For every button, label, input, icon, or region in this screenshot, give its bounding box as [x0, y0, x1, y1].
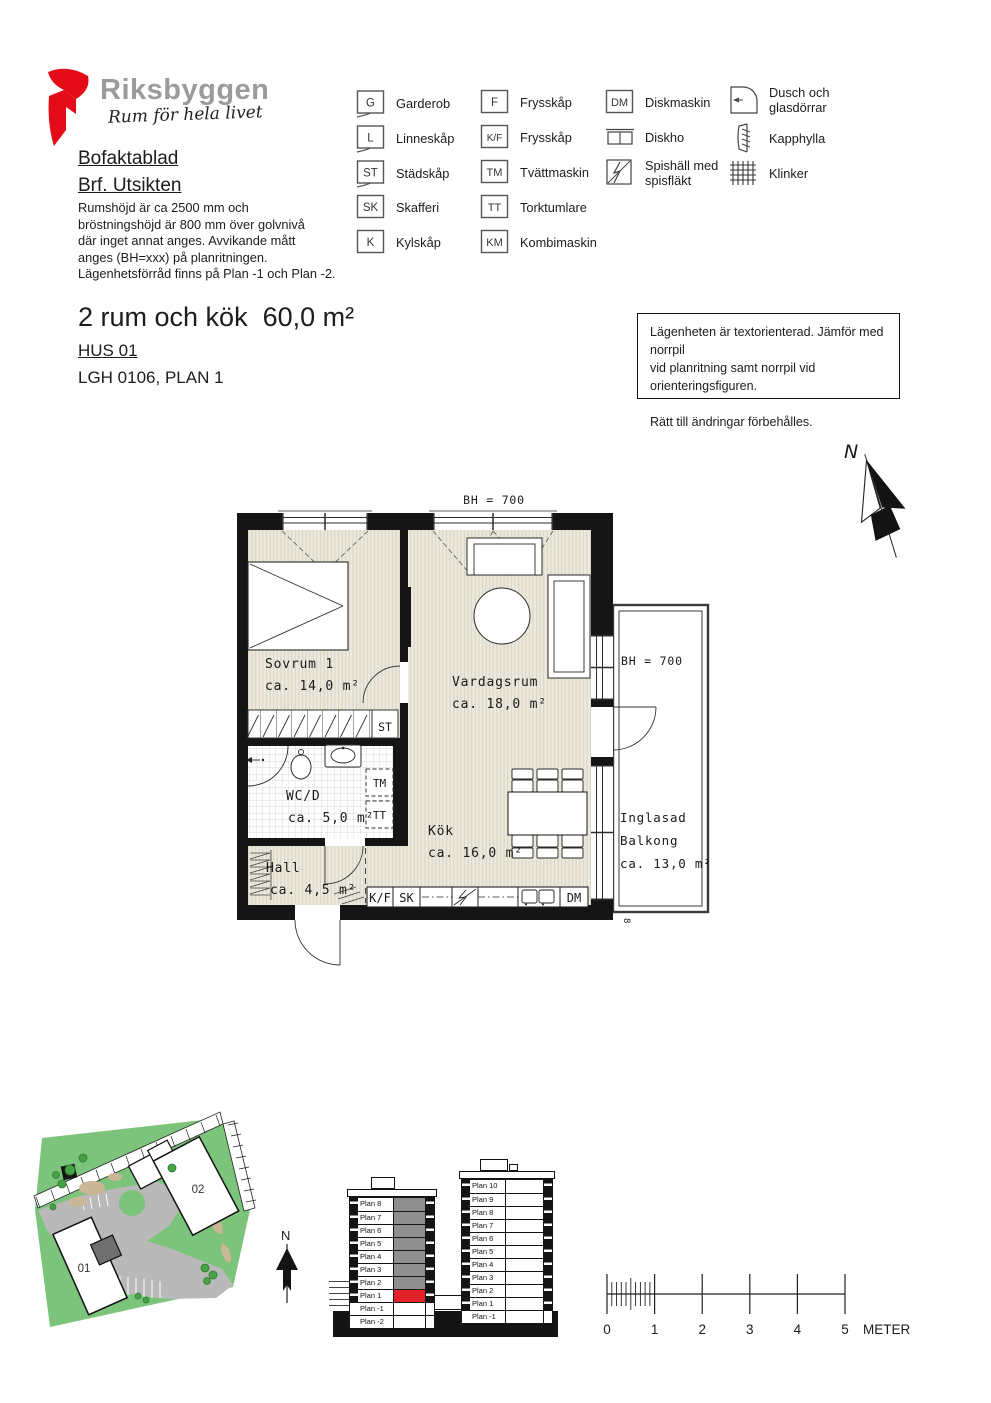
hus02-penthouse — [480, 1159, 508, 1171]
room-name: Kök — [428, 824, 454, 839]
roundabout-green — [119, 1190, 145, 1216]
room-name: Hall — [266, 861, 301, 876]
legend-label: Garderob — [396, 96, 490, 111]
legend-label: Frysskåp — [520, 95, 614, 110]
elevation-floor-row: Plan 8 — [462, 1206, 552, 1219]
elevation-floor-row: Plan 7 — [462, 1219, 552, 1232]
floor-label: Plan 3 — [470, 1272, 505, 1284]
sofa — [467, 538, 542, 575]
description-line: anges (BH=xxx) på planritningen. — [78, 250, 336, 267]
building-01-label: 01 — [78, 1263, 91, 1275]
legend-item: TM Tvättmaskin — [480, 159, 614, 185]
cabinet-box-icon: L — [356, 124, 386, 153]
ground-hatch — [329, 1281, 349, 1309]
elevation-floor-row: Plan 2 — [350, 1276, 434, 1289]
floor-label: Plan 9 — [470, 1194, 505, 1206]
sink-icon — [605, 127, 635, 147]
elevation-floor-row: Plan -1 — [462, 1310, 552, 1323]
toilet-icon — [291, 755, 311, 779]
floor-label: Plan 4 — [358, 1251, 393, 1263]
scale-unit-label: METER — [863, 1322, 911, 1337]
document-title-line2: Brf. Utsikten — [78, 172, 181, 199]
legend-label: Kombimaskin — [520, 235, 614, 250]
legend-label: Tvättmaskin — [520, 165, 614, 180]
floor-label: Plan 8 — [358, 1198, 393, 1211]
elevation-floor-row: Plan 6 — [350, 1224, 434, 1237]
room-name: Sovrum 1 — [265, 657, 334, 672]
elevation-hus01: Plan 8 Plan 7 Plan 6 Plan 5 Plan 4 Plan … — [349, 1197, 435, 1329]
floor-label: Plan 2 — [358, 1277, 393, 1289]
legend-item: TT Torktumlare — [480, 194, 614, 220]
floor-label: Plan -2 — [358, 1316, 393, 1328]
elevation-floor-row: Plan 9 — [462, 1193, 552, 1206]
room-area: ca. 16,0 m² — [428, 846, 523, 861]
svg-text:K/F: K/F — [487, 133, 503, 144]
document-title: Bofaktablad Brf. Utsikten — [78, 145, 181, 199]
north-arrow: N — [832, 430, 927, 560]
legend-label: Dusch och glasdörrar — [769, 85, 863, 115]
elevation-floor-row: Plan 3 — [462, 1271, 552, 1284]
elevation-floor-row: Plan 1 — [462, 1297, 552, 1310]
room-area: ca. 5,0 m² — [288, 811, 374, 826]
link-building — [434, 1295, 462, 1310]
floor-label: Plan 2 — [470, 1285, 505, 1297]
bofaktablad-sheet: Riksbyggen Rum för hela livet Bofaktabla… — [0, 0, 991, 1403]
kitchen-counter: K/F SK DM — [367, 887, 588, 907]
cabinet-box-icon: DM — [605, 89, 635, 115]
legend-label: Torktumlare — [520, 200, 614, 215]
elevation-floor-row: Plan -1 — [350, 1302, 434, 1315]
description-line: Rumshöjd är ca 2500 mm och — [78, 200, 336, 217]
scale-tick-label: 4 — [794, 1322, 802, 1337]
riksbyggen-logo-icon — [36, 68, 96, 148]
stove-icon — [605, 158, 635, 188]
elevation-floor-row: Plan 3 — [350, 1263, 434, 1276]
north-label: N — [844, 441, 858, 463]
legend-label: Kylskåp — [396, 235, 490, 250]
site-north-label: N — [281, 1228, 290, 1243]
legend-item: ST Städskåp — [356, 159, 490, 188]
floor-label: Plan -1 — [470, 1311, 505, 1323]
cabinet-box-icon: SK — [356, 194, 386, 220]
brand-tagline: Rum för hela livet — [108, 102, 263, 127]
scale-tick-label: 5 — [841, 1322, 849, 1337]
elevation-floor-row: Plan 5 — [350, 1237, 434, 1250]
floor-label: Plan 3 — [358, 1264, 393, 1276]
svg-text:K: K — [367, 237, 375, 249]
st-label: ST — [378, 720, 392, 734]
scale-bar: 0 1 2 3 4 5 METER — [595, 1260, 925, 1344]
bh-label: BH = 700 — [621, 654, 683, 668]
floor-plan: ST — [230, 488, 730, 988]
apartment-title: 2 rum och kök 60,0 m² — [78, 302, 354, 333]
apartment-house: HUS 01 — [78, 341, 138, 361]
window — [591, 635, 613, 700]
elevation-floor-row: Plan 6 — [462, 1232, 552, 1245]
notice-line: vid planritning samt norrpil vid oriente… — [650, 359, 887, 395]
cabinet-box-icon: G — [356, 89, 386, 118]
window — [591, 765, 613, 900]
washbasin-icon — [325, 745, 361, 767]
floor-label: Plan 7 — [358, 1212, 393, 1224]
wardrobe-row — [248, 710, 372, 738]
legend-item: K Kylskåp — [356, 229, 490, 255]
notice-line: Lägenheten är textorienterad. Jämför med… — [650, 323, 887, 359]
cabinet-box-icon: TT — [480, 194, 510, 220]
floor-label: Plan 10 — [470, 1180, 505, 1193]
floor-label: Plan 6 — [470, 1233, 505, 1245]
room-name: Balkong — [620, 833, 678, 848]
building-02-label: 02 — [192, 1184, 205, 1196]
floor-label: Plan 4 — [470, 1259, 505, 1271]
description-line: Lägenhetsförråd finns på Plan -1 och Pla… — [78, 266, 336, 283]
elevation-floor-row: Plan 4 — [462, 1258, 552, 1271]
orientation-notice: Lägenheten är textorienterad. Jämför med… — [637, 313, 900, 399]
bed — [248, 562, 348, 650]
svg-text:TM: TM — [487, 167, 503, 179]
room-name: Inglasad — [620, 810, 687, 825]
elevation-floor-row-highlighted: Plan 1 — [350, 1289, 434, 1302]
legend-label: Kapphylla — [769, 131, 863, 146]
room-area: ca. 14,0 m² — [265, 679, 360, 694]
sideboard — [548, 575, 590, 678]
elevation-hus02: Plan 10 Plan 9 Plan 8 Plan 7 Plan 6 Plan… — [461, 1179, 553, 1324]
room-name: Vardagsrum — [452, 675, 538, 690]
legend-label: Diskmaskin — [645, 95, 739, 110]
svg-text:DM: DM — [611, 97, 628, 109]
elevation-floor-row: Plan 8 — [350, 1198, 434, 1211]
scale-tick-label: 1 — [651, 1322, 659, 1337]
hus02-roof — [459, 1171, 555, 1179]
hus01-penthouse — [371, 1177, 395, 1189]
legend-item: Diskho — [605, 127, 739, 147]
legend-item: Klinker — [729, 160, 863, 186]
elevation-floor-row: Plan 7 — [350, 1211, 434, 1224]
floor-label: Plan -1 — [358, 1303, 393, 1315]
elevation-floor-row: Plan 5 — [462, 1245, 552, 1258]
sk-label: SK — [399, 891, 414, 905]
cabinet-box-icon: K — [356, 229, 386, 255]
legend-label: Spishäll med spisfläkt — [645, 158, 739, 188]
shower-icon — [729, 85, 759, 115]
hus01-roof — [347, 1189, 437, 1197]
bh-label: BH = 700 — [463, 493, 525, 507]
tt-label: TT — [373, 809, 387, 822]
legend-item: L Linneskåp — [356, 124, 490, 153]
legend-item: Dusch och glasdörrar — [729, 85, 863, 115]
window — [429, 511, 557, 530]
scale-tick-label: 3 — [746, 1322, 754, 1337]
legend-label: Frysskåp — [520, 130, 614, 145]
elevation-floor-row: Plan 4 — [350, 1250, 434, 1263]
cabinet-box-icon: TM — [480, 159, 510, 185]
floor-label: Plan 1 — [358, 1290, 393, 1302]
room-name: WC/D — [286, 789, 321, 804]
description-line: bröstningshöjd är 800 mm över golvnivå — [78, 217, 336, 234]
floor-label: Plan 8 — [470, 1207, 505, 1219]
window — [278, 511, 372, 530]
legend-label: Städskåp — [396, 166, 490, 181]
legend-item: SK Skafferi — [356, 194, 490, 220]
hus02-penthouse-step — [509, 1164, 518, 1171]
legend-item: F Frysskåp — [480, 89, 614, 115]
svg-text:TT: TT — [488, 202, 502, 214]
section-marker: 8 — [621, 918, 631, 924]
legend-item: Spishäll med spisfläkt — [605, 158, 739, 188]
dm-label: DM — [567, 891, 581, 905]
room-area: ca. 18,0 m² — [452, 697, 547, 712]
legend-item: K/F Frysskåp — [480, 124, 614, 150]
svg-text:G: G — [366, 98, 375, 110]
scale-tick-label: 2 — [698, 1322, 706, 1337]
legend-label: Skafferi — [396, 200, 490, 215]
floor-label: Plan 5 — [470, 1246, 505, 1258]
apartment-unit: LGH 0106, PLAN 1 — [78, 368, 224, 388]
scale-tick-label: 0 — [603, 1322, 611, 1337]
floor-label: Plan 6 — [358, 1225, 393, 1237]
floor-label: Plan 7 — [470, 1220, 505, 1232]
legend-label: Diskho — [645, 130, 739, 145]
site-north-arrow: N — [276, 1228, 298, 1303]
cabinet-box-icon: K/F — [480, 124, 510, 150]
tm-label: TM — [373, 777, 387, 790]
elevation-floor-row: Plan 10 — [462, 1180, 552, 1193]
dining-set — [508, 769, 587, 858]
description-line: där inget annat anges. Avvikande mått — [78, 233, 336, 250]
room-area: ca. 4,5 m² — [270, 883, 356, 898]
svg-text:ST: ST — [363, 168, 378, 180]
site-plan: 02 01 N — [20, 1098, 320, 1343]
cabinet-box-icon: ST — [356, 159, 386, 188]
cabinet-box-icon: F — [480, 89, 510, 115]
description-paragraph: Rumshöjd är ca 2500 mm och bröstningshöj… — [78, 200, 336, 283]
svg-text:L: L — [367, 133, 374, 145]
notice-line: Rätt till ändringar förbehålles. — [650, 413, 887, 431]
document-title-line1: Bofaktablad — [78, 145, 181, 172]
floor-label: Plan 5 — [358, 1238, 393, 1250]
coat-rack-icon — [729, 123, 759, 153]
legend-item: Kapphylla — [729, 123, 863, 153]
kf-label: K/F — [369, 891, 391, 905]
svg-text:SK: SK — [363, 202, 379, 214]
svg-text:KM: KM — [486, 237, 503, 249]
svg-text:F: F — [491, 97, 498, 109]
legend-item: G Garderob — [356, 89, 490, 118]
room-area: ca. 13,0 m² — [620, 856, 712, 871]
legend-item: KM Kombimaskin — [480, 229, 614, 255]
legend-item: DM Diskmaskin — [605, 89, 739, 115]
floor-label: Plan 1 — [470, 1298, 505, 1310]
legend-label: Klinker — [769, 166, 863, 181]
elevation-floor-row: Plan 2 — [462, 1284, 552, 1297]
tile-grid-icon — [729, 160, 759, 186]
cabinet-box-icon: KM — [480, 229, 510, 255]
legend-label: Linneskåp — [396, 131, 490, 146]
round-table — [474, 588, 530, 644]
elevation-floor-row: Plan -2 — [350, 1315, 434, 1328]
